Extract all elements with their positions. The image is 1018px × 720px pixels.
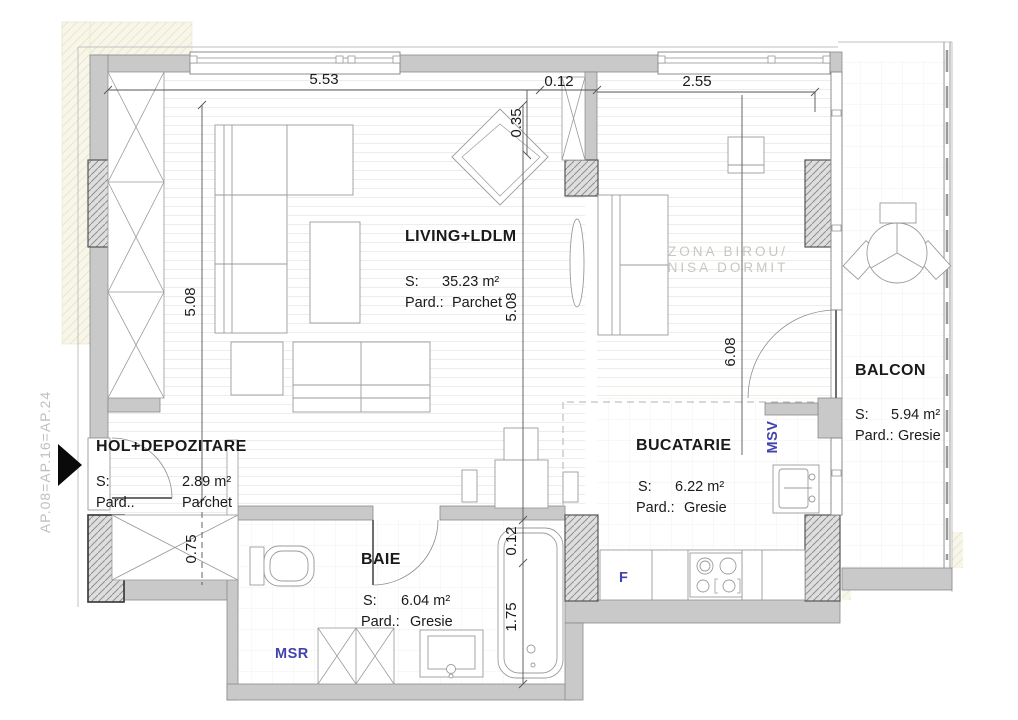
window-balcony-wall-lower [831,438,842,515]
dim-right-height: 6.08 [722,337,739,366]
pouf [231,342,283,395]
baie-pard-label: Pard.: [361,614,400,630]
dim-top-right-width: 2.55 [682,73,711,90]
dim-top-width: 5.53 [309,71,338,88]
baie-name: BAIE [361,551,401,568]
kitchen-sink [773,465,819,513]
dim-top-offset: 0.35 [508,108,525,137]
balcon-floor: Gresie [898,428,941,444]
bucatarie-pard-label: Pard.: [636,500,675,516]
wardrobe-left [108,72,164,398]
wall-mirror [570,219,584,307]
balcon-s-label: S: [855,407,869,423]
wall-divider-living-niche [585,72,597,160]
bucatarie-s-label: S: [638,479,652,495]
pillar-mid [565,160,598,196]
hol-name: HOL+DEPOZITARE [96,438,247,455]
washer-space-msr [318,628,394,684]
bath-sink [420,630,483,678]
bucatarie-floor: Gresie [684,500,727,516]
wall-step-bottom [565,623,583,700]
wall-hol-stub [108,398,160,412]
wall-balcony-bottom [842,568,952,590]
living-s-label: S: [405,274,419,290]
living-name: LIVING+LDLM [405,228,517,245]
closet-hol [112,515,238,580]
wall-below-hol [108,578,238,600]
entrance-marker: AP.08=AP.16=AP.24 [37,391,82,533]
window-living [190,52,400,74]
msr-label: MSR [275,646,309,662]
fridge-label: F [619,570,628,586]
zone-line2: NISA DORMIT [668,260,789,275]
dim-left-height: 5.08 [182,287,199,316]
wall-kitchen-bottom [565,600,840,623]
hol-floor: Parchet [182,495,232,511]
coffee-table [310,222,360,323]
baie-floor: Gresie [410,614,453,630]
living-pard-label: Pard.: [405,295,444,311]
dim-tub-length: 1.75 [503,602,520,631]
zone-label: ZONA BIROU/ NISA DORMIT [668,244,789,275]
apartment-code: AP.08=AP.16=AP.24 [37,391,53,533]
stove [690,553,742,597]
bed [598,195,668,335]
dim-bath-wall: 0.12 [503,526,520,555]
balcon-area: 5.94 m² [891,407,940,423]
bucatarie-area: 6.22 m² [675,479,724,495]
hol-area: 2.89 m² [182,474,231,490]
living-area: 35.23 m² [442,274,499,290]
baie-area: 6.04 m² [401,593,450,609]
tv-bench [293,342,430,412]
nightstand [728,137,764,173]
window-niche [658,52,830,74]
balcon-name: BALCON [855,362,926,379]
wall-top-right-stub [830,52,842,74]
bucatarie-name: BUCATARIE [636,437,731,454]
toilet [250,546,314,586]
zone-line1: ZONA BIROU/ [668,244,788,259]
pillar-kitchen-right [805,515,840,601]
wall-msv-stub [818,398,842,438]
wall-bath-top-left [238,506,373,520]
msv-label: MSV [765,421,781,454]
pillar-kitchen-left [565,515,598,601]
window-balcony-wall-upper [831,72,842,310]
dim-closet-depth: 0.75 [183,534,200,563]
hol-s-label: S: [96,474,110,490]
balcon-pard-label: Pard.: [855,428,894,444]
wall-msv-strip [765,403,818,415]
dim-wall-thickness: 0.12 [544,73,573,90]
wall-top-mid [400,55,658,72]
floor-plan-drawing: 5.53 0.35 0.12 2.55 5.08 5.08 6.08 0.75 … [0,0,1018,720]
wall-bath-left [227,578,238,700]
dim-mid-height: 5.08 [503,292,520,321]
baie-s-label: S: [363,593,377,609]
floor-plan-canvas: 5.53 0.35 0.12 2.55 5.08 5.08 6.08 0.75 … [0,0,1018,720]
living-floor: Parchet [452,295,502,311]
hol-pard-label: Pard.. [96,495,135,511]
